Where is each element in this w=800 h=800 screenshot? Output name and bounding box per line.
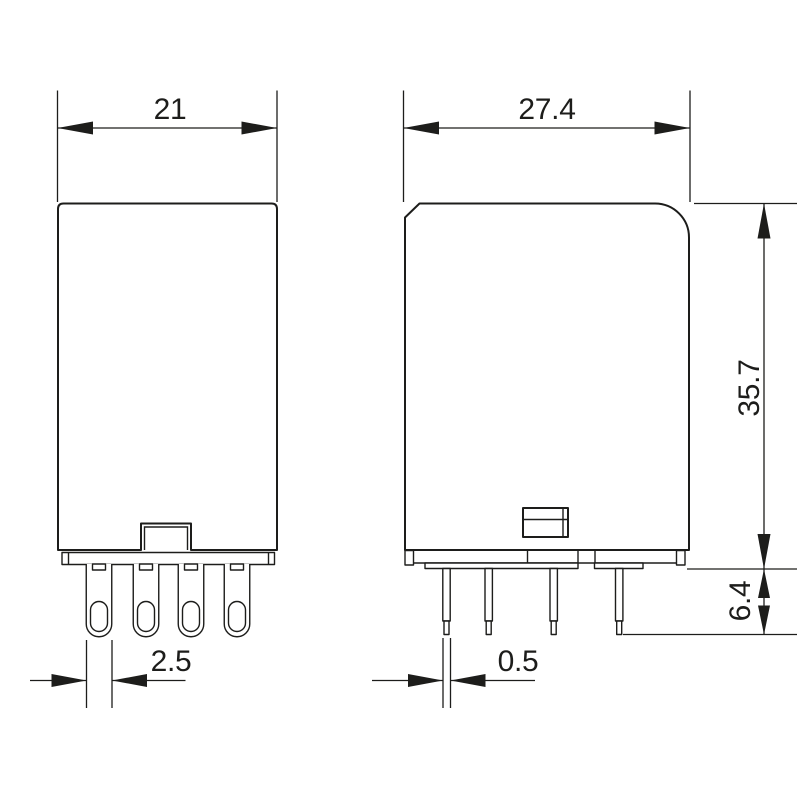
- side-height-dimension: 35.7: [687, 204, 797, 570]
- side-pin-3: [550, 569, 557, 635]
- front-base-plate: [62, 553, 275, 565]
- drawing-canvas: 21: [0, 0, 800, 800]
- side-base: [405, 551, 685, 569]
- side-clip-detail: [523, 508, 568, 537]
- front-pin-3: [178, 564, 204, 637]
- arrowhead-left: [404, 122, 440, 135]
- pin-top-notch: [140, 564, 153, 570]
- arrowhead-right: [655, 122, 691, 135]
- side-pin-length-label: 6.4: [724, 581, 757, 622]
- pin-rail: [595, 563, 644, 569]
- arrowhead-down: [758, 534, 771, 569]
- side-view: 27.4: [372, 91, 797, 709]
- pin-top-notch: [231, 564, 244, 570]
- front-width-dimension: 21: [58, 91, 278, 203]
- arrowhead-left: [112, 674, 147, 687]
- pin-hole: [229, 602, 246, 632]
- arrowhead-down: [758, 606, 770, 635]
- side-pin-4: [616, 569, 623, 635]
- front-pin-4: [224, 564, 250, 637]
- pin-hole: [183, 602, 200, 632]
- front-latch-notch-inner: [145, 527, 188, 550]
- pin-blade: [485, 569, 492, 622]
- pin-tip: [444, 621, 449, 635]
- front-pin-2: [133, 564, 159, 637]
- relay-dimension-drawing: 21: [0, 0, 800, 800]
- pin-rail: [425, 563, 578, 569]
- pin-blade: [550, 569, 557, 622]
- side-pin-length-dimension: 6.4: [623, 569, 797, 635]
- arrowhead-up: [758, 204, 771, 239]
- side-pin-thickness-dimension: 0.5: [372, 638, 538, 708]
- side-depth-dimension: 27.4: [404, 91, 691, 203]
- arrowhead-left: [58, 122, 94, 135]
- pin-tip: [486, 621, 491, 635]
- arrowhead-right: [242, 122, 278, 135]
- front-pin-1: [86, 564, 112, 637]
- clip-outline: [523, 508, 568, 537]
- side-height-label: 35.7: [733, 359, 766, 416]
- pin-blade: [443, 569, 450, 622]
- side-depth-label: 27.4: [518, 93, 575, 126]
- pin-blade: [616, 569, 623, 622]
- pin-top-notch: [185, 564, 198, 570]
- front-body-outline: [58, 204, 277, 551]
- arrowhead-up: [758, 569, 770, 598]
- pin-hole: [138, 602, 155, 632]
- arrowhead-right: [52, 674, 87, 687]
- front-pin-width-dimension: 2.5: [30, 640, 191, 708]
- base-end-tab: [677, 551, 686, 566]
- front-pin-width-label: 2.5: [151, 645, 192, 678]
- pin-tip: [551, 621, 556, 635]
- pin-hole: [91, 602, 108, 632]
- arrowhead-right: [408, 674, 443, 687]
- side-body-outline: [405, 204, 689, 551]
- side-pin-1: [443, 569, 450, 635]
- side-pin-2: [485, 569, 492, 635]
- pin-tip: [617, 621, 622, 635]
- arrowhead-left: [451, 674, 486, 687]
- pin-top-notch: [93, 564, 106, 570]
- side-pin-thickness-label: 0.5: [498, 645, 539, 678]
- front-view: 21: [30, 91, 277, 709]
- front-width-label: 21: [154, 93, 187, 126]
- base-end-tab: [405, 551, 414, 566]
